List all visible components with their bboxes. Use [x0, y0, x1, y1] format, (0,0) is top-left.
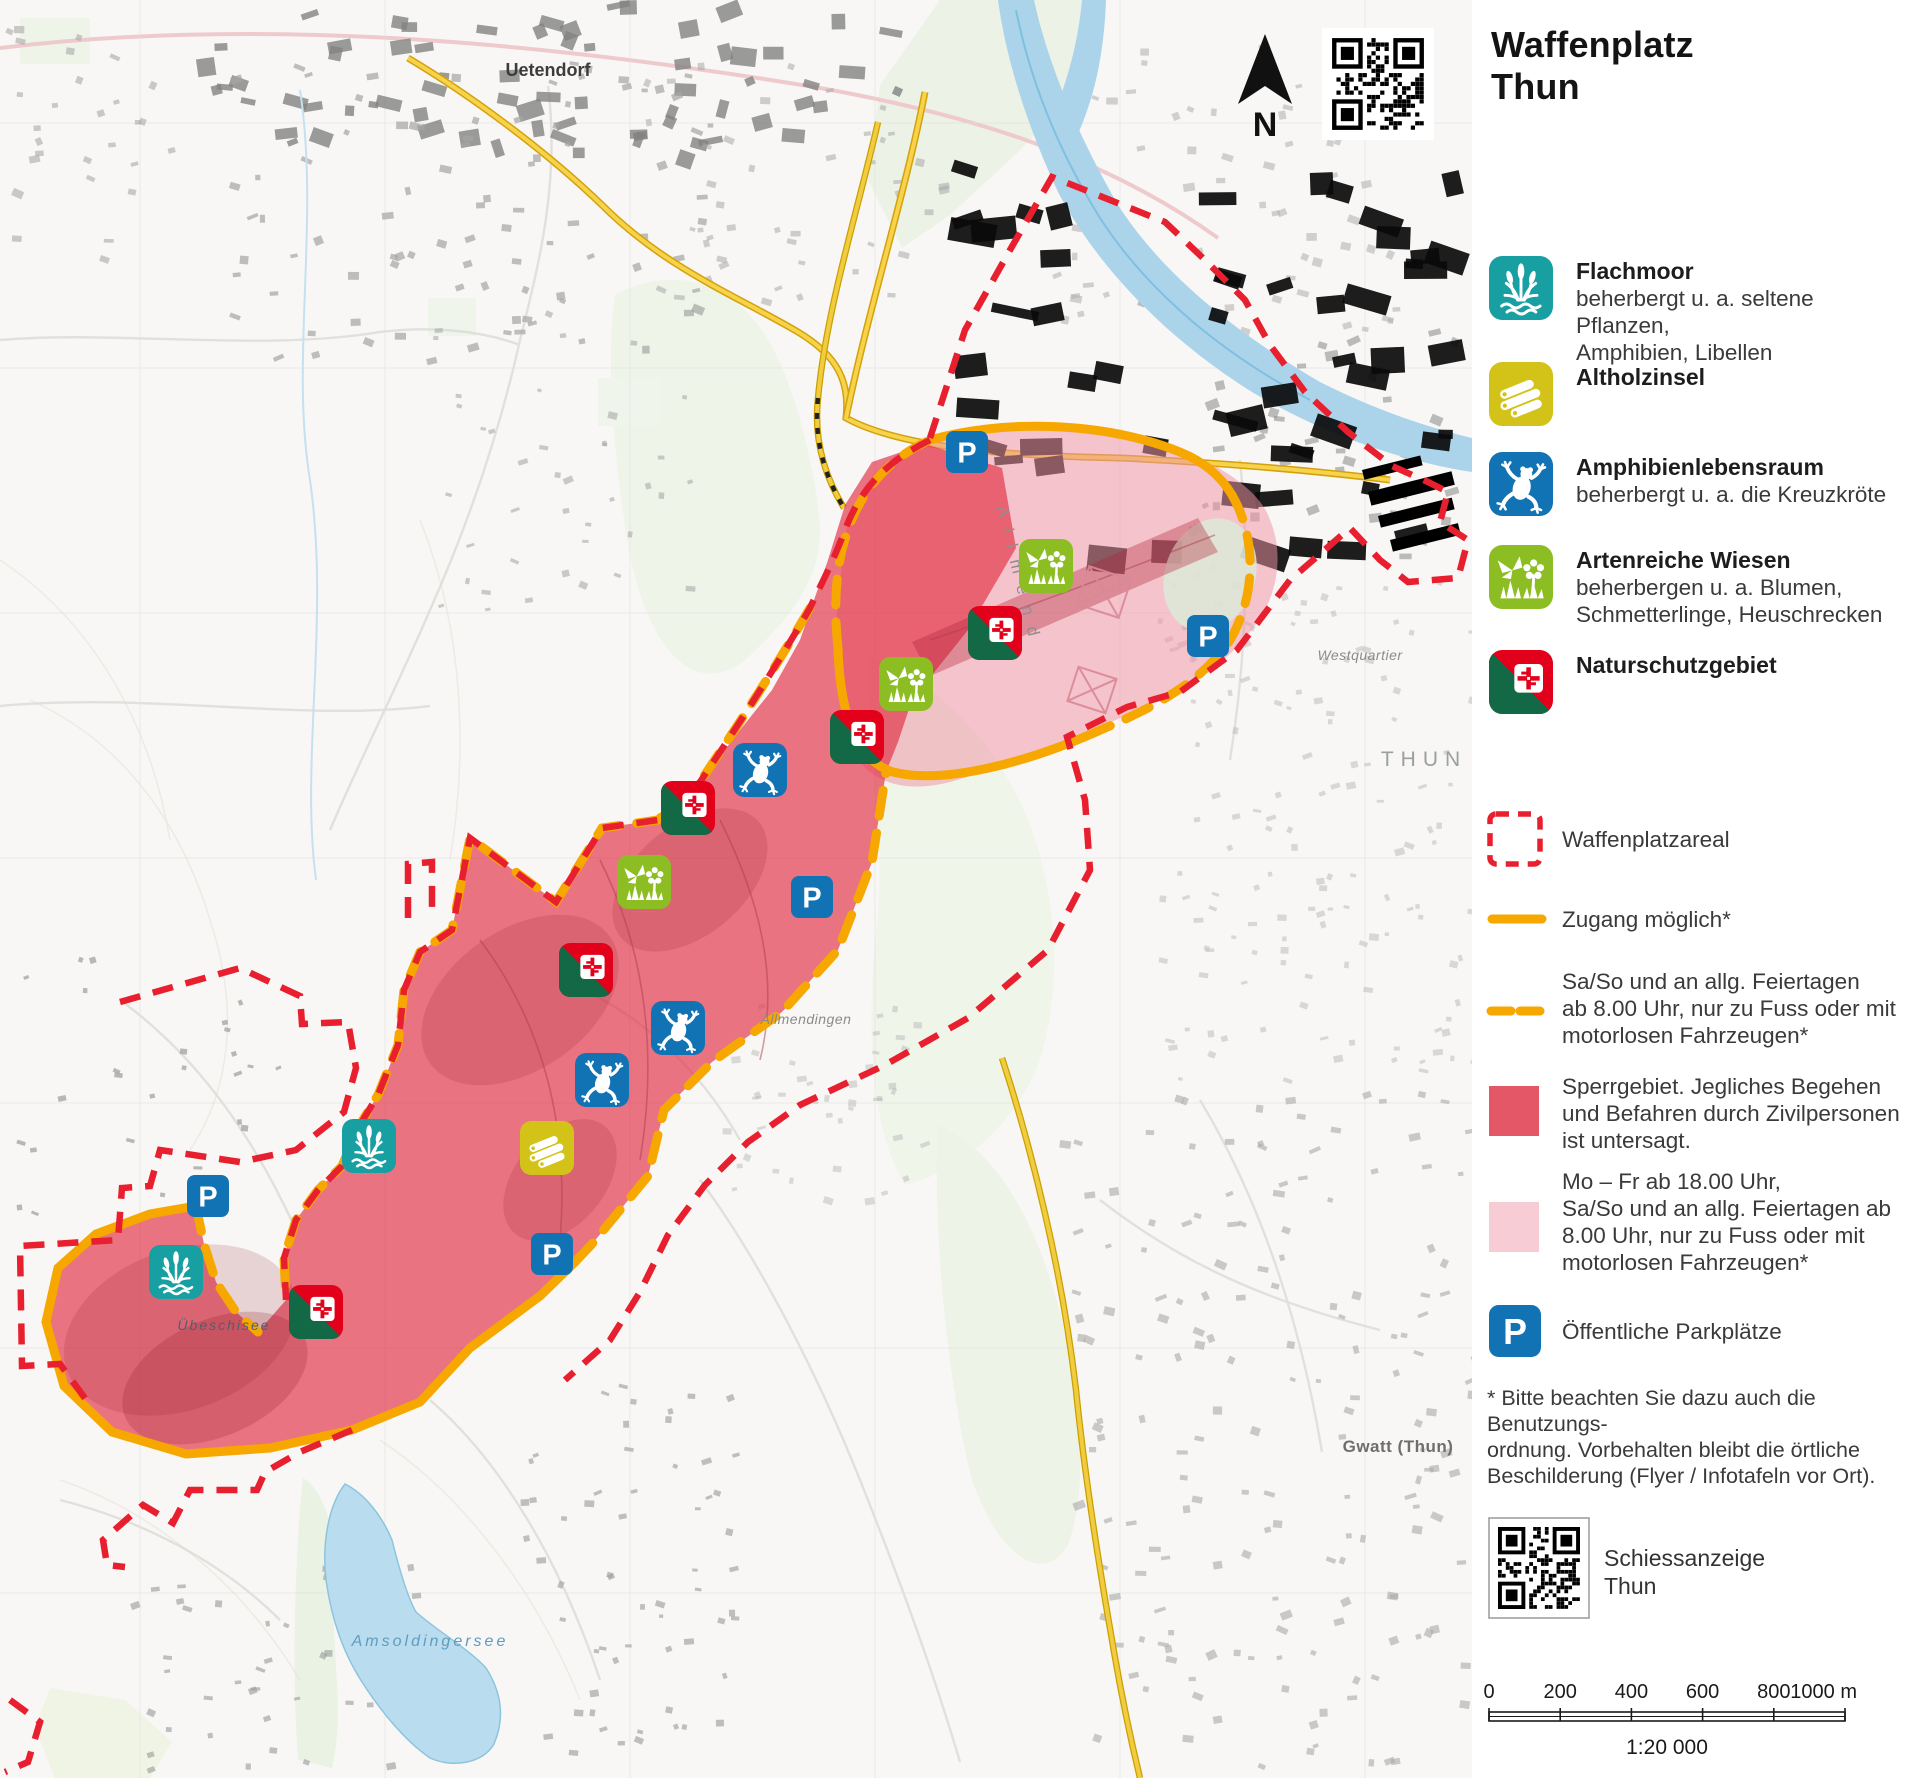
scale-bar: 02004006008001000 m1:20 000 [1472, 1676, 1892, 1776]
map-marker-parking [1187, 615, 1229, 657]
map-marker-naturschutz [830, 710, 884, 764]
legend-boundary-icon [1486, 810, 1544, 868]
map-area: P [0, 0, 1472, 1778]
title-line1: Waffenplatz [1491, 24, 1694, 66]
map-label: Allmendingen [760, 1011, 852, 1027]
svg-text:1000 m: 1000 m [1790, 1681, 1857, 1703]
map-label: Amsoldingersee [351, 1633, 509, 1650]
map-marker-naturschutz [661, 781, 715, 835]
map-label: THUN [1381, 748, 1467, 771]
map-label: Gwatt (Thun) [1343, 1437, 1454, 1456]
legend-frog-icon [1489, 452, 1553, 516]
svg-text:400: 400 [1615, 1681, 1648, 1703]
map-marker-wiesen [879, 657, 933, 711]
legend-saso: Sa/So und an allg. Feiertagen ab 8.00 Uh… [1562, 968, 1912, 1049]
map-marker-flachmoor [149, 1245, 203, 1299]
legend-parking-icon [1489, 1305, 1541, 1357]
legend-amphibien: Amphibienlebensraum beherbergt u. a. die… [1576, 454, 1916, 508]
legend-sperr: Sperrgebiet. Jegliches Begehen und Befah… [1562, 1073, 1920, 1154]
legend-access-label: Zugang möglich* [1562, 906, 1731, 933]
legend-mofr: Mo – Fr ab 18.00 Uhr, Sa/So und an allg.… [1562, 1168, 1920, 1276]
legend-parking-label: Öffentliche Parkplätze [1562, 1318, 1782, 1345]
legend-naturschutz: Naturschutzgebiet [1576, 652, 1916, 679]
map-marker-frog [733, 743, 787, 797]
north-letter: N [1253, 106, 1278, 144]
map-label: Uetendorf [506, 60, 592, 80]
map-marker-naturschutz [559, 943, 613, 997]
legend-flachmoor: Flachmoor beherbergt u. a. seltene Pflan… [1576, 258, 1906, 366]
svg-text:800: 800 [1757, 1681, 1790, 1703]
legend-wiesen: Artenreiche Wiesen beherbergen u. a. Blu… [1576, 547, 1916, 628]
legend-qr-code [1487, 1516, 1591, 1620]
map-marker-frog [651, 1001, 705, 1055]
map-marker-altholz [520, 1121, 574, 1175]
map-qr-code [1322, 28, 1434, 140]
map-marker-naturschutz [968, 606, 1022, 660]
svg-text:0: 0 [1483, 1681, 1494, 1703]
map-label: Westquartier [1317, 647, 1403, 663]
waffenplatz-thun-map-poster: P [0, 0, 1920, 1778]
svg-text:200: 200 [1544, 1681, 1577, 1703]
legend-altholz: Altholzinsel [1576, 364, 1906, 391]
map-marker-wiesen [617, 855, 671, 909]
svg-text:600: 600 [1686, 1681, 1719, 1703]
map-marker-parking [531, 1233, 573, 1275]
map-marker-flachmoor [342, 1119, 396, 1173]
map-marker-wiesen [1019, 539, 1073, 593]
legend-qr-label: Schiessanzeige Thun [1604, 1544, 1765, 1600]
page-title: Waffenplatz Thun [1491, 24, 1694, 108]
legend-pink-swatch [1489, 1202, 1539, 1252]
map-marker-parking [791, 876, 833, 918]
legend-footnote: * Bitte beachten Sie dazu auch die Benut… [1487, 1385, 1887, 1489]
map-marker-parking [946, 431, 988, 473]
legend-naturschutz-icon [1489, 650, 1553, 714]
legend-panel: Waffenplatz Thun Flachmoor beherbergt u.… [1472, 0, 1920, 1778]
legend-access-solid-icon [1486, 912, 1548, 926]
map-marker-frog [575, 1053, 629, 1107]
legend-access-dashed-icon [1486, 1004, 1548, 1018]
map-label: Übeschisee [177, 1316, 270, 1333]
legend-boundary-label: Waffenplatzareal [1562, 826, 1730, 853]
title-line2: Thun [1491, 66, 1694, 108]
scale-ratio: 1:20 000 [1626, 1736, 1708, 1759]
legend-wiesen-icon [1489, 545, 1553, 609]
map-marker-naturschutz [289, 1285, 343, 1339]
legend-flachmoor-icon [1489, 256, 1553, 320]
legend-sperr-swatch [1489, 1086, 1539, 1136]
topographic-map: P [0, 0, 1472, 1778]
map-marker-parking [187, 1175, 229, 1217]
legend-altholz-icon [1489, 362, 1553, 426]
